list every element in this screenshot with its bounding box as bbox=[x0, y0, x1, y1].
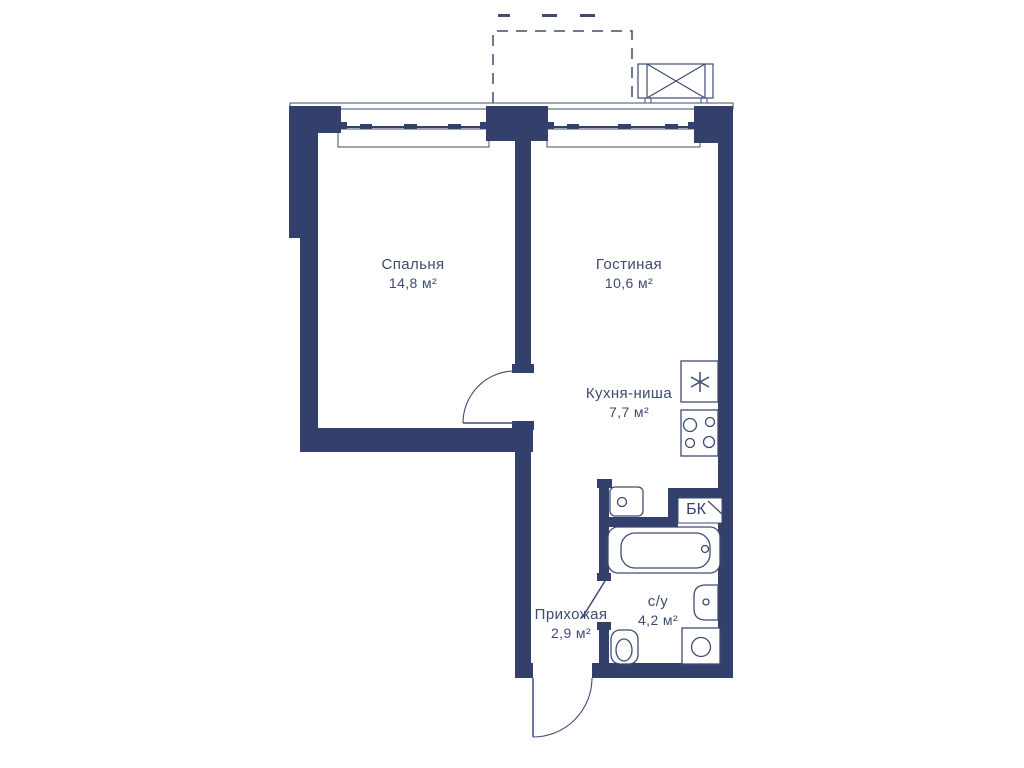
wall-top-pier-right bbox=[694, 106, 733, 143]
appliance-icon bbox=[610, 487, 643, 516]
room-label-bedroom: Спальня 14,8 м² bbox=[381, 256, 444, 292]
floor-plan-drawing bbox=[0, 0, 1024, 768]
ac-basket-icon bbox=[638, 64, 713, 107]
wall-bottom-right bbox=[592, 663, 733, 678]
room-area: 2,9 м² bbox=[535, 624, 608, 642]
door-jamb bbox=[512, 421, 534, 430]
door-swing-arc bbox=[533, 678, 592, 737]
vent-shaft-label: БК bbox=[686, 501, 706, 519]
room-label-living-room: Гостиная 10,6 м² bbox=[596, 256, 662, 292]
stove-icon bbox=[681, 410, 718, 456]
wall-hallway-left bbox=[515, 452, 531, 678]
room-area: 10,6 м² bbox=[596, 274, 662, 292]
wall-under-appliance bbox=[599, 517, 672, 527]
toilet-icon bbox=[611, 630, 638, 664]
wall-right bbox=[718, 143, 733, 678]
wall-bedroom-partition bbox=[515, 140, 531, 364]
kitchen-sink-icon bbox=[681, 361, 718, 402]
room-name: Прихожая bbox=[535, 606, 608, 624]
room-area: 4,2 м² bbox=[638, 611, 678, 629]
door-jamb bbox=[512, 364, 534, 373]
room-name: Гостиная bbox=[596, 256, 662, 274]
washing-machine-icon bbox=[682, 628, 720, 664]
wall-top-pier-center bbox=[486, 106, 548, 141]
room-name: Кухня-ниша bbox=[586, 385, 672, 403]
window-sill bbox=[338, 129, 489, 147]
wall-left-upper bbox=[289, 106, 318, 238]
washbasin-icon bbox=[694, 585, 718, 620]
balcony-dashed-outline bbox=[493, 31, 632, 103]
room-area: 7,7 м² bbox=[586, 403, 672, 421]
room-name: с/у bbox=[638, 593, 678, 611]
window-living-room bbox=[547, 122, 700, 147]
room-label-kitchen-niche: Кухня-ниша 7,7 м² bbox=[586, 385, 672, 421]
wall-bottom-left-corner bbox=[515, 663, 533, 678]
apartment-floor-plan: Спальня 14,8 м² Гостиная 10,6 м² Кухня-н… bbox=[0, 0, 1024, 768]
slab-edge-dashes bbox=[498, 14, 595, 17]
door-jamb bbox=[597, 573, 611, 581]
room-name: Спальня bbox=[381, 256, 444, 274]
window-sill bbox=[547, 129, 700, 147]
room-area: 14,8 м² bbox=[381, 274, 444, 292]
wall-left-lower bbox=[300, 238, 318, 428]
bedroom-door bbox=[463, 371, 515, 423]
entrance-door bbox=[533, 678, 592, 737]
wall-vent-top bbox=[668, 488, 722, 498]
wall-bedroom-bottom bbox=[300, 428, 533, 452]
door-swing-arc bbox=[463, 371, 515, 423]
room-label-hallway: Прихожая 2,9 м² bbox=[535, 606, 608, 642]
window-bedroom bbox=[338, 122, 489, 147]
bathtub-icon bbox=[608, 527, 720, 573]
room-label-bathroom: с/у 4,2 м² bbox=[638, 593, 678, 629]
